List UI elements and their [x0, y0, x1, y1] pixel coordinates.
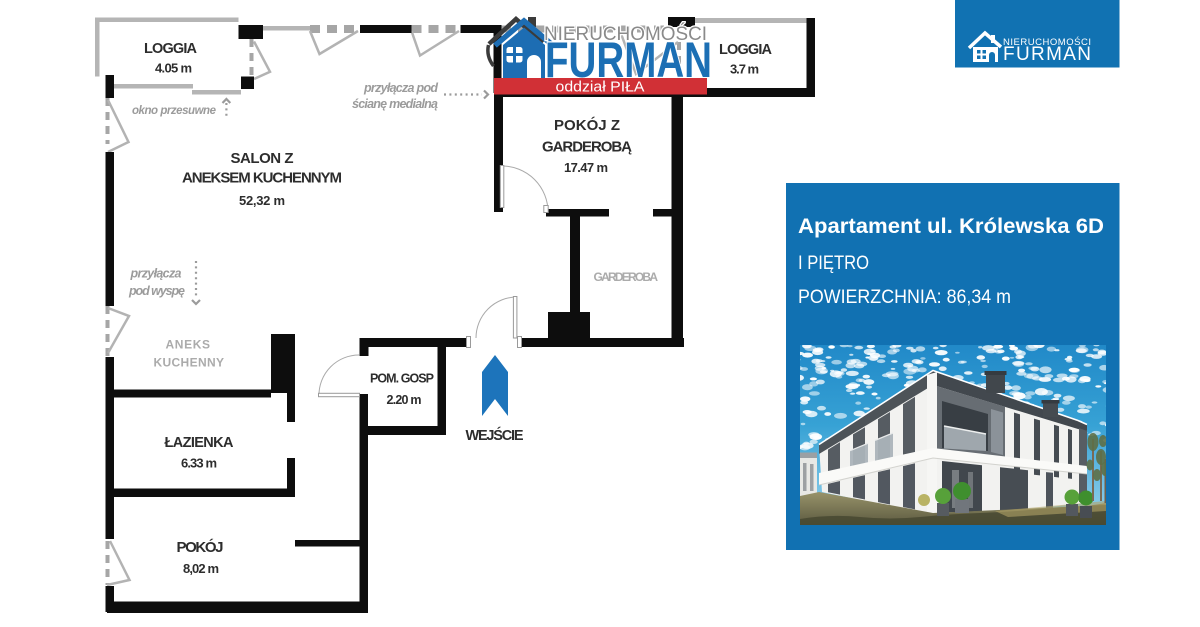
- svg-text:ANEKSEM KUCHENNYM: ANEKSEM KUCHENNYM: [182, 170, 342, 187]
- svg-text:SALON Z: SALON Z: [231, 150, 294, 167]
- svg-text:GARDEROBĄ: GARDEROBĄ: [542, 139, 632, 156]
- svg-text:ścianę medialną: ścianę medialną: [352, 97, 438, 111]
- svg-text:ANEKS: ANEKS: [166, 338, 211, 352]
- svg-text:POWIERZCHNIA: 86,34 m: POWIERZCHNIA: 86,34 m: [798, 287, 1011, 308]
- svg-text:52,32 m: 52,32 m: [239, 193, 285, 208]
- svg-text:ŁAZIENKA: ŁAZIENKA: [165, 435, 235, 451]
- svg-text:8,02 m: 8,02 m: [183, 561, 219, 576]
- svg-text:GARDEROBA: GARDEROBA: [594, 270, 659, 284]
- svg-text:LOGGIA: LOGGIA: [719, 42, 773, 58]
- svg-text:6.33 m: 6.33 m: [181, 456, 217, 471]
- svg-text:3.7 m: 3.7 m: [730, 62, 759, 77]
- svg-text:przyłącza pod: przyłącza pod: [363, 81, 438, 95]
- svg-text:2.20 m: 2.20 m: [387, 393, 422, 407]
- svg-text:Apartament ul. Królewska 6D: Apartament ul. Królewska 6D: [798, 214, 1104, 238]
- svg-text:KUCHENNY: KUCHENNY: [154, 356, 225, 370]
- svg-text:4.05 m: 4.05 m: [155, 61, 192, 76]
- svg-text:I PIĘTRO: I PIĘTRO: [798, 253, 869, 274]
- svg-text:LOGGIA: LOGGIA: [144, 41, 198, 57]
- svg-text:POM. GOSP: POM. GOSP: [370, 372, 434, 386]
- svg-text:oddział PIŁA: oddział PIŁA: [556, 79, 645, 96]
- svg-text:POKÓJ Z: POKÓJ Z: [554, 116, 620, 134]
- svg-text:pod wyspę: pod wyspę: [128, 284, 185, 298]
- svg-text:FURMAN: FURMAN: [1003, 44, 1093, 65]
- svg-text:okno przesuwne: okno przesuwne: [132, 105, 217, 117]
- svg-text:WEJŚCIE: WEJŚCIE: [466, 426, 524, 444]
- svg-text:przyłącza: przyłącza: [130, 267, 182, 281]
- svg-text:17.47 m: 17.47 m: [564, 160, 608, 175]
- svg-text:POKÓJ: POKÓJ: [177, 538, 224, 556]
